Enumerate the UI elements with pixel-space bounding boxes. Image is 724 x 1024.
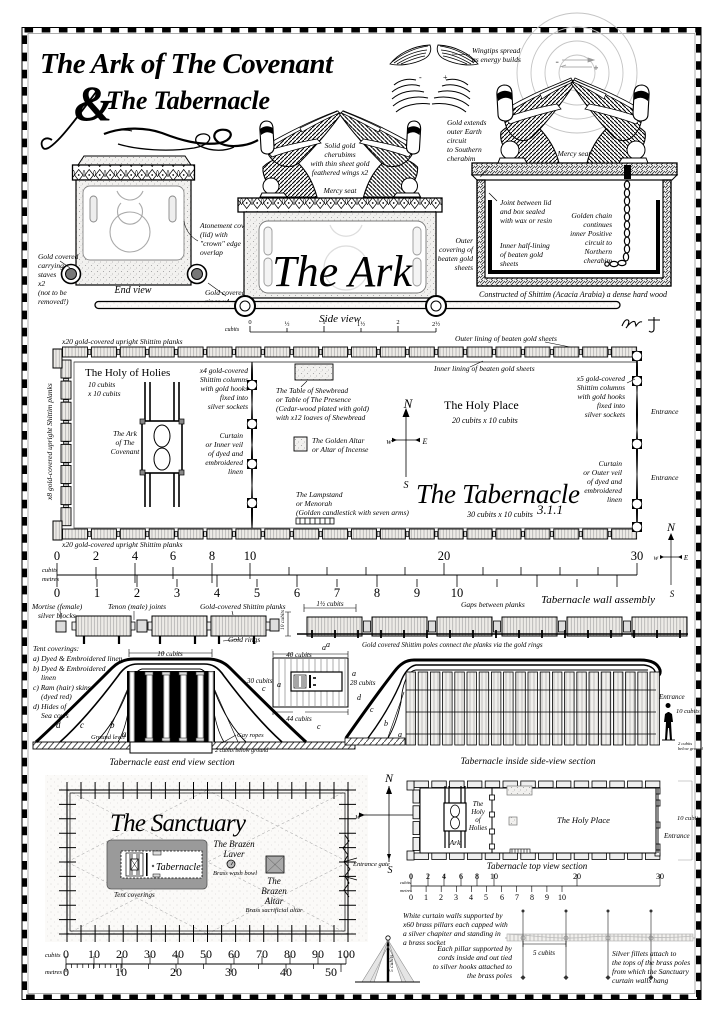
svg-text:cubits: cubits: [400, 880, 411, 885]
svg-text:The Ark: The Ark: [113, 429, 137, 438]
svg-text:The: The: [267, 876, 281, 886]
svg-text:Atonement cover: Atonement cover: [199, 221, 251, 230]
svg-text:a: a: [326, 640, 330, 649]
svg-text:of dyed and: of dyed and: [208, 449, 243, 458]
svg-text:or Outer veil: or Outer veil: [583, 468, 622, 477]
svg-text:50: 50: [325, 965, 337, 979]
svg-text:cords inside and out tied: cords inside and out tied: [438, 953, 512, 962]
svg-text:b) Dyed & Embroidered: b) Dyed & Embroidered: [33, 664, 106, 673]
svg-text:The Holy of Holies: The Holy of Holies: [85, 367, 170, 379]
svg-text:1½: 1½: [357, 321, 365, 328]
svg-text:sheets: sheets: [455, 263, 473, 272]
svg-text:c: c: [317, 722, 321, 731]
svg-text:x 10 cubits: x 10 cubits: [87, 389, 121, 398]
svg-text:3.1.1: 3.1.1: [536, 502, 563, 517]
svg-text:circuit to: circuit to: [585, 238, 612, 247]
svg-text:Covenant: Covenant: [111, 447, 141, 456]
svg-text:carrying: carrying: [38, 261, 64, 270]
svg-text:cherabim: cherabim: [584, 256, 613, 265]
svg-text:x4 gold-covered: x4 gold-covered: [199, 366, 248, 375]
svg-text:of dyed and: of dyed and: [587, 477, 622, 486]
svg-text:8: 8: [209, 549, 215, 563]
svg-text:with gold hooks: with gold hooks: [577, 392, 625, 401]
svg-text:20: 20: [170, 965, 182, 979]
svg-text:Curtain: Curtain: [599, 459, 623, 468]
svg-text:outer Earth: outer Earth: [447, 127, 482, 136]
svg-text:Inner half-lining: Inner half-lining: [499, 241, 550, 250]
svg-text:The Brazen: The Brazen: [213, 839, 255, 849]
svg-text:0: 0: [409, 893, 413, 902]
svg-text:(dyed red): (dyed red): [41, 692, 72, 701]
svg-text:removed!): removed!): [38, 297, 69, 306]
svg-text:30: 30: [631, 549, 644, 563]
svg-text:fixed into: fixed into: [220, 393, 248, 402]
svg-text:cherubims: cherubims: [324, 150, 355, 159]
svg-text:20 cubits x 10 cubits: 20 cubits x 10 cubits: [452, 416, 518, 425]
svg-text:Gaps between planks: Gaps between planks: [461, 600, 525, 609]
svg-text:+: +: [443, 73, 448, 82]
svg-text:30 cubits: 30 cubits: [246, 677, 273, 685]
svg-text:silver sockets: silver sockets: [585, 410, 625, 419]
svg-text:staves: staves: [38, 270, 56, 279]
svg-text:inner Positive: inner Positive: [570, 229, 613, 238]
svg-text:Entrance: Entrance: [663, 832, 690, 840]
svg-text:d) Hides of: d) Hides of: [33, 702, 67, 711]
svg-text:w: w: [386, 437, 392, 446]
svg-text:S: S: [404, 480, 409, 491]
svg-text:x60 brass pillars each capped: x60 brass pillars each capped with: [402, 920, 508, 929]
svg-text:c: c: [80, 720, 84, 730]
svg-text:Each pillar supported by: Each pillar supported by: [436, 944, 512, 953]
svg-text:E: E: [422, 437, 428, 446]
svg-text:6: 6: [500, 893, 504, 902]
svg-text:10: 10: [558, 893, 566, 902]
svg-text:as energy builds: as energy builds: [472, 55, 521, 64]
svg-text:a: a: [277, 680, 281, 689]
svg-text:Tabernacle inside side-view se: Tabernacle inside side-view section: [461, 757, 596, 767]
svg-text:linen: linen: [41, 673, 56, 682]
svg-text:the tops of the brass poles: the tops of the brass poles: [612, 958, 690, 967]
svg-text:8: 8: [530, 893, 534, 902]
svg-text:Constructed of Shittim (Acacia: Constructed of Shittim (Acacia Arabia) a…: [479, 290, 668, 299]
svg-text:6: 6: [294, 586, 300, 600]
svg-text:to Southern: to Southern: [447, 145, 482, 154]
svg-text:The Holy Place: The Holy Place: [557, 815, 610, 825]
svg-text:N: N: [666, 520, 676, 534]
svg-text:beaten gold: beaten gold: [438, 254, 473, 263]
svg-text:2 cubits below ground: 2 cubits below ground: [215, 748, 269, 754]
svg-text:3: 3: [454, 893, 458, 902]
svg-text:a: a: [322, 643, 326, 652]
svg-text:Ark: Ark: [449, 838, 462, 847]
svg-text:The Holy Place: The Holy Place: [444, 398, 519, 412]
svg-text:Northern: Northern: [583, 247, 612, 256]
svg-text:N: N: [384, 771, 394, 785]
svg-text:or Inner veil: or Inner veil: [206, 440, 244, 449]
svg-text:S: S: [670, 589, 675, 599]
svg-text:d: d: [56, 720, 61, 730]
svg-text:Ground level: Ground level: [91, 734, 125, 741]
svg-text:metres: metres: [45, 969, 63, 976]
svg-text:cubits: cubits: [225, 327, 240, 333]
svg-text:Brazen: Brazen: [261, 886, 287, 896]
svg-text:2: 2: [439, 893, 443, 902]
svg-text:Silver fillets attach to: Silver fillets attach to: [612, 949, 677, 958]
svg-text:40: 40: [280, 965, 292, 979]
svg-text:embroidered: embroidered: [205, 458, 243, 467]
svg-text:to silver hooks attached to: to silver hooks attached to: [433, 962, 512, 971]
svg-text:from which the Sanctuary: from which the Sanctuary: [612, 967, 690, 976]
svg-text:Wingtips spread: Wingtips spread: [472, 46, 521, 55]
svg-text:with wax or resin: with wax or resin: [500, 216, 552, 225]
svg-text:White curtain walls supported: White curtain walls supported by: [403, 911, 503, 920]
svg-text:Gold rings: Gold rings: [228, 635, 260, 644]
svg-text:the brass poles: the brass poles: [467, 971, 512, 980]
svg-text:Brass wash bowl: Brass wash bowl: [213, 870, 257, 877]
svg-text:linen: linen: [228, 467, 243, 476]
svg-text:Tabernacle wall assembly: Tabernacle wall assembly: [541, 594, 655, 606]
svg-text:10 cubits: 10 cubits: [676, 708, 700, 715]
svg-text:x5 gold-covered: x5 gold-covered: [576, 374, 625, 383]
svg-text:cubits: cubits: [42, 567, 58, 574]
svg-text:x20 gold-covered upright Shitt: x20 gold-covered upright Shittim planks: [61, 540, 183, 549]
svg-text:w: w: [654, 554, 659, 562]
svg-text:covering of: covering of: [439, 245, 474, 254]
svg-text:of The: of The: [116, 438, 136, 447]
svg-text:(not to be: (not to be: [38, 288, 67, 297]
svg-text:Golden chain: Golden chain: [571, 211, 612, 220]
svg-text:2½: 2½: [432, 321, 440, 328]
svg-text:Altar: Altar: [264, 896, 284, 906]
svg-text:with x12 loaves of Shewbread: with x12 loaves of Shewbread: [276, 413, 366, 422]
svg-text:10 cubits: 10 cubits: [677, 815, 701, 822]
svg-text:Gold covered: Gold covered: [38, 252, 79, 261]
svg-text:c: c: [262, 684, 266, 693]
svg-text:Shittim columns: Shittim columns: [577, 383, 625, 392]
svg-text:Entrance: Entrance: [650, 473, 679, 482]
svg-text:5 cubits: 5 cubits: [533, 949, 555, 957]
svg-text:a: a: [352, 669, 356, 678]
svg-text:10 cubits: 10 cubits: [280, 610, 286, 630]
svg-text:with thin sheet gold: with thin sheet gold: [311, 159, 370, 168]
svg-text:10: 10: [115, 965, 127, 979]
svg-text:30: 30: [225, 965, 237, 979]
svg-text:c) Ram (hair) skins: c) Ram (hair) skins: [33, 683, 91, 692]
svg-text:7: 7: [515, 893, 519, 902]
svg-text:Gay ropes: Gay ropes: [237, 732, 264, 739]
svg-text:Tabernacle east end view secti: Tabernacle east end view section: [109, 758, 234, 768]
svg-text:Gold extends: Gold extends: [447, 118, 486, 127]
svg-text:28 cubits: 28 cubits: [350, 679, 376, 687]
svg-text:5 cubits: 5 cubits: [389, 955, 395, 972]
svg-text:8: 8: [374, 586, 380, 600]
svg-text:silver sockets: silver sockets: [208, 402, 248, 411]
svg-text:Brass sacrificial altar: Brass sacrificial altar: [245, 907, 303, 914]
svg-text:20: 20: [438, 549, 451, 563]
svg-text:4: 4: [469, 893, 473, 902]
svg-text:1: 1: [94, 586, 100, 600]
svg-text:4: 4: [132, 549, 139, 563]
svg-text:½: ½: [285, 321, 290, 328]
svg-text:Entrance gate: Entrance gate: [352, 861, 390, 868]
svg-text:of beaten gold: of beaten gold: [500, 250, 543, 259]
svg-text:(Cedar-wood plated with gold): (Cedar-wood plated with gold): [276, 404, 369, 413]
svg-text:cubits: cubits: [45, 952, 61, 959]
svg-text:E: E: [683, 554, 689, 562]
svg-text:5: 5: [484, 893, 488, 902]
svg-text:0: 0: [54, 586, 60, 600]
svg-text:continues: continues: [583, 220, 612, 229]
svg-text:4: 4: [214, 586, 221, 600]
svg-text:Holy: Holy: [470, 808, 486, 816]
svg-text:with gold hooks: with gold hooks: [200, 384, 248, 393]
svg-text:The Ark: The Ark: [272, 247, 413, 296]
svg-text:feathered wings x2: feathered wings x2: [312, 168, 369, 177]
svg-text:circuit: circuit: [447, 136, 467, 145]
svg-text:x8 gold-covered upright Shitti: x8 gold-covered upright Shittim planks: [45, 383, 54, 501]
svg-text:Curtain: Curtain: [220, 431, 244, 440]
svg-text:Shittim columns: Shittim columns: [200, 375, 248, 384]
svg-text:10: 10: [244, 549, 257, 563]
svg-text:Outer lining of beaten gold sh: Outer lining of beaten gold sheets: [455, 334, 557, 343]
svg-text:10: 10: [451, 586, 464, 600]
svg-text:Joint between lid: Joint between lid: [500, 198, 551, 207]
svg-text:embroidered: embroidered: [584, 486, 622, 495]
svg-text:2: 2: [93, 549, 99, 563]
svg-text:The Sanctuary: The Sanctuary: [110, 810, 247, 837]
svg-text:Entrance: Entrance: [658, 693, 685, 701]
svg-text:a silver chapiter and standing: a silver chapiter and standing in: [403, 929, 501, 938]
svg-text:5: 5: [254, 586, 260, 600]
svg-text:The Tabernacle: The Tabernacle: [106, 86, 270, 115]
svg-text:or Altar of Incense: or Altar of Incense: [312, 445, 369, 454]
svg-text:End view: End view: [114, 285, 152, 296]
svg-text:Gold covered Shittim poles con: Gold covered Shittim poles connect the p…: [362, 641, 543, 649]
svg-text:6: 6: [170, 549, 176, 563]
svg-text:w: w: [355, 812, 361, 821]
svg-text:30 cubits x 10 cubits: 30 cubits x 10 cubits: [466, 510, 533, 519]
svg-text:Tenon (male) joints: Tenon (male) joints: [108, 602, 166, 611]
svg-text:Mercy seat: Mercy seat: [557, 149, 592, 158]
svg-text:Entrance: Entrance: [650, 407, 679, 416]
svg-text:Tabernacle top view section: Tabernacle top view section: [487, 861, 588, 871]
svg-text:2: 2: [396, 319, 399, 326]
svg-text:The: The: [473, 800, 484, 808]
svg-text:1: 1: [322, 319, 325, 326]
svg-text:Laver: Laver: [223, 849, 245, 859]
svg-text:curtain walls hang: curtain walls hang: [612, 976, 669, 985]
svg-text:2: 2: [134, 586, 140, 600]
svg-text:S: S: [388, 865, 393, 876]
svg-text:Gold-covered Shittim planks: Gold-covered Shittim planks: [200, 602, 286, 611]
svg-text:(Golden candlestick with seven: (Golden candlestick with seven arms): [296, 508, 409, 517]
svg-text:a) Dyed & Embroidered linen: a) Dyed & Embroidered linen: [33, 654, 123, 663]
svg-text:silver blocks: silver blocks: [38, 611, 76, 620]
svg-text:below ground: below ground: [678, 746, 703, 751]
svg-text:The Lampstand: The Lampstand: [296, 490, 343, 499]
svg-text:0: 0: [54, 549, 60, 563]
svg-text:7: 7: [334, 586, 340, 600]
svg-text:9: 9: [545, 893, 549, 902]
svg-text:"crown" edge: "crown" edge: [200, 239, 241, 248]
svg-text:3: 3: [174, 586, 180, 600]
svg-text:Outer: Outer: [456, 236, 474, 245]
svg-text:10 cubits: 10 cubits: [157, 650, 183, 658]
svg-text:overlap: overlap: [200, 248, 223, 257]
svg-text:0: 0: [248, 319, 251, 326]
svg-text:Tent coverings: Tent coverings: [114, 891, 155, 899]
svg-text:Mercy seat: Mercy seat: [323, 186, 358, 195]
svg-text:Solid gold: Solid gold: [325, 141, 356, 150]
svg-text:b: b: [110, 720, 115, 730]
svg-text:-: -: [419, 73, 422, 82]
svg-text:N: N: [403, 396, 414, 411]
svg-text:x2: x2: [37, 279, 45, 288]
svg-text:x20 gold-covered upright Shitt: x20 gold-covered upright Shittim planks: [61, 337, 183, 346]
svg-text:Tent coverings:: Tent coverings:: [33, 644, 79, 653]
svg-text:and box sealed: and box sealed: [500, 207, 545, 216]
svg-text:sheets: sheets: [500, 259, 518, 268]
svg-text:(lid) with: (lid) with: [200, 230, 228, 239]
svg-text:The Table of Shewbread: The Table of Shewbread: [276, 386, 348, 395]
svg-text:fixed into: fixed into: [597, 401, 625, 410]
svg-text:linen: linen: [607, 495, 622, 504]
svg-text:or Menorah: or Menorah: [296, 499, 332, 508]
svg-text:9: 9: [414, 586, 420, 600]
svg-text:1: 1: [424, 893, 428, 902]
svg-text:b: b: [384, 719, 388, 728]
svg-text:Mortise (female): Mortise (female): [31, 602, 83, 611]
svg-text:1½ cubits: 1½ cubits: [316, 600, 343, 608]
svg-text:44 cubits: 44 cubits: [286, 715, 312, 723]
svg-text:c: c: [370, 705, 374, 714]
svg-text:+: +: [594, 64, 598, 72]
svg-text:10 cubits: 10 cubits: [88, 380, 115, 389]
svg-text:Holies: Holies: [468, 824, 488, 832]
svg-text:or Table of The Presence: or Table of The Presence: [276, 395, 352, 404]
svg-text:The Golden Altar: The Golden Altar: [312, 436, 364, 445]
svg-text:0: 0: [63, 965, 69, 979]
svg-text:cherabim: cherabim: [447, 154, 476, 163]
svg-text:Inner lining of beaten gold sh: Inner lining of beaten gold sheets: [433, 364, 535, 373]
svg-text:Tabernacle: Tabernacle: [156, 862, 201, 873]
